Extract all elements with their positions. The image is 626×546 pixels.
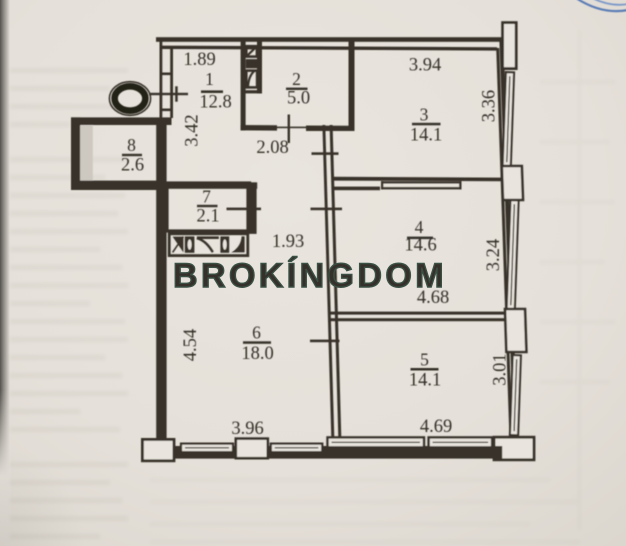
svg-text:3.94: 3.94 bbox=[409, 56, 441, 76]
svg-text:3.24: 3.24 bbox=[484, 239, 504, 271]
svg-text:3.36: 3.36 bbox=[480, 90, 500, 122]
svg-text:2.08: 2.08 bbox=[256, 138, 288, 158]
svg-text:1: 1 bbox=[205, 69, 214, 89]
svg-text:14.6: 14.6 bbox=[404, 236, 436, 256]
svg-text:2.6: 2.6 bbox=[121, 156, 144, 176]
svg-text:3.96: 3.96 bbox=[231, 419, 263, 439]
svg-text:3: 3 bbox=[420, 105, 429, 125]
svg-text:18.0: 18.0 bbox=[241, 344, 273, 364]
svg-text:BROKÍNGDOM: BROKÍNGDOM bbox=[173, 257, 447, 295]
svg-text:5: 5 bbox=[420, 350, 429, 370]
svg-text:6: 6 bbox=[252, 323, 261, 343]
svg-text:3.01: 3.01 bbox=[491, 353, 511, 385]
svg-text:1.89: 1.89 bbox=[183, 50, 215, 70]
svg-text:7: 7 bbox=[202, 187, 211, 207]
svg-text:4.54: 4.54 bbox=[181, 329, 201, 361]
svg-text:3.42: 3.42 bbox=[183, 114, 203, 146]
svg-text:14.1: 14.1 bbox=[410, 126, 442, 146]
svg-text:12.8: 12.8 bbox=[199, 93, 231, 113]
svg-text:4: 4 bbox=[415, 217, 424, 237]
svg-text:2.1: 2.1 bbox=[196, 207, 219, 227]
svg-text:5.0: 5.0 bbox=[287, 89, 310, 109]
svg-text:1.93: 1.93 bbox=[272, 232, 304, 252]
svg-text:14.1: 14.1 bbox=[409, 371, 441, 391]
svg-text:8: 8 bbox=[127, 135, 136, 155]
svg-text:4.69: 4.69 bbox=[420, 417, 452, 437]
svg-text:2: 2 bbox=[292, 69, 301, 89]
